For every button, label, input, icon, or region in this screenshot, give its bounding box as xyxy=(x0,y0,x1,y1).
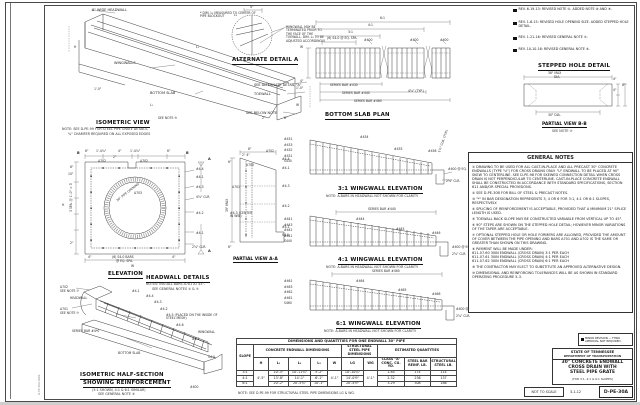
half-label-wingwall: WINGWALL xyxy=(198,331,215,334)
elev-dim-t2: 1'-4⅞" xyxy=(96,150,106,153)
half-label-see7a: SEE NOTE ⑦ xyxy=(60,290,79,293)
elev-label-a702b: A702 xyxy=(140,160,148,163)
step-dim-30: 30" DIA. xyxy=(548,114,561,117)
partial-bb-title: PARTIAL VIEW B-B xyxy=(542,122,587,128)
ww3-bar-434: #434 xyxy=(360,136,369,139)
general-note: ① DRAWING TO BE USED FOR ALL CAST-IN-PLA… xyxy=(472,165,629,189)
half-title-1: ISOMETRIC HALF-SECTION xyxy=(80,372,164,380)
cell-slope: 6:1 xyxy=(237,381,254,387)
general-note: ③ "*" IN BAR DESIGNATION REPRESENTS 3, 4… xyxy=(472,197,629,205)
cell-w: 4'-1" xyxy=(328,370,342,387)
elev-dim-l10: 10" xyxy=(68,173,73,176)
elev-marker-a2: A xyxy=(208,250,211,254)
iso-dim-l2: L₂ xyxy=(196,46,199,49)
wingwall-31-drawing xyxy=(296,132,461,188)
elev-dim-w: W xyxy=(131,265,134,268)
slab-dim-61: 6:1 xyxy=(380,17,385,20)
ww6-stack-4: #461 xyxy=(284,297,293,300)
title-block: STATE OF TENNESSEE DEPARTMENT OF TRANSPO… xyxy=(552,348,633,385)
slab-label-400c: #400 xyxy=(440,39,449,42)
quantities-table: DIMENSIONS AND QUANTITIES FOR ONE ENDWAL… xyxy=(236,338,457,387)
general-note: ⑨ THE CONTRACTOR MAY ELECT TO SUBSTITUTE… xyxy=(472,265,629,269)
general-notes-box: GENERAL NOTES ① DRAWING TO BE USED FOR A… xyxy=(468,152,633,313)
pa-label-center: #4-3 (CENTER IN WW) xyxy=(230,212,256,219)
step-dim-4a: 4" xyxy=(613,78,616,81)
slab-label-400a: #400 xyxy=(364,39,373,42)
elev-marker-a1: A xyxy=(208,158,211,162)
binding-margin-line xyxy=(10,3,11,399)
revision-item: REV. 6-19-13: REVISED NOTE ⑤. ADDED NOTE… xyxy=(513,8,633,12)
elev-label-r4: 4⅝" CLR. xyxy=(196,196,210,199)
pa-dim-24: 2" 4" xyxy=(242,154,250,157)
col-class-a: CLASS "A" CONC. CU. YD. xyxy=(378,357,405,370)
ww3-bar-435: #435 xyxy=(394,148,403,151)
elev-label-r2: #4-1 xyxy=(196,176,204,179)
col-lg: LG xyxy=(342,357,364,370)
pa-label-r2: #4-1 xyxy=(282,167,290,170)
general-note: ⑤ TOEWALL BACK SLOPE MAY BE CONSTRUCTED … xyxy=(472,217,629,221)
cell-steel: 186 xyxy=(431,381,457,387)
revision-item: REV. 10-10-16: REVISED GENERAL NOTE ⑥. xyxy=(513,48,633,52)
ww3-stack-5: S430 xyxy=(284,160,292,163)
revision-marker-icon xyxy=(513,9,517,13)
iso-dim-10: 1'-0" xyxy=(94,88,101,91)
agency-dept: DEPARTMENT OF TRANSPORTATION xyxy=(553,354,632,358)
cell-reinf: 308 xyxy=(405,381,431,387)
drawing-sheet: D-PE-30A.DGN 8" WIDE HEADWALL * DIM. L₂ … xyxy=(0,0,640,405)
half-label-b2: #4-2 xyxy=(160,308,168,311)
ww4-series: SERIES BAR #440 xyxy=(368,208,396,211)
revision-item: REV. 1-6-15: REVISED HOLE OPENING SIZE. … xyxy=(513,21,633,29)
ww3-dim-clr: 2⅝" CLR. xyxy=(446,180,460,183)
slab-dim-typ: 4⅝" (TYP.) xyxy=(408,90,424,93)
ww6-stack-2: #463 xyxy=(284,286,293,289)
pa-label-a702: A702 xyxy=(266,150,274,153)
cell-l3: 10'-1" xyxy=(311,381,328,387)
half-label-b4: #4-4 xyxy=(146,295,154,298)
elevation-drawing xyxy=(58,148,218,270)
general-note-payment: ⑧ PAYMENT WILL BE MADE UNDER: 611-07.60 … xyxy=(472,247,629,263)
elev-dim-t5: 6" xyxy=(167,150,170,153)
minor-revision-text: MINOR REVISION — FHWA APPROVAL NOT REQUI… xyxy=(585,337,631,343)
drawing-title-line3: STEEL PIPE GRATE xyxy=(553,370,632,375)
slab-dim-41: 4:1 xyxy=(368,24,373,27)
elev-label-r1: #4-4 xyxy=(196,168,204,171)
elev-label-r3: #4-3 xyxy=(196,186,204,189)
ww6-dim-clr: 2⅝" CLR. xyxy=(456,315,470,318)
ww3-note: NOTE: A-BARS IN HEADWALL NOT SHOWN FOR C… xyxy=(326,195,418,199)
ww4-dim-clr: 2⅝" CLR. xyxy=(452,253,466,256)
general-notes-title: GENERAL NOTES xyxy=(469,153,632,163)
iso-label-see-alt: SEE ALTERNATE DETAIL "A" xyxy=(254,84,301,88)
general-note: ⑦ OPTIONAL STEPPED HOLE OR HOLE FORMERS … xyxy=(472,233,629,245)
cell-h: 4'-5" xyxy=(254,370,269,387)
revision-text: REV. 1-6-15: REVISED HOLE OPENING SIZE. … xyxy=(519,21,634,29)
elev-dim-h: H xyxy=(62,204,64,207)
ww4-bar-446: #446 xyxy=(432,232,441,235)
iso-note2: ¾" CHAMFER REQUIRED ON ALL EXPOSED EDGES xyxy=(68,133,150,137)
revision-text: REV. 1-21-16: REVISED GENERAL NOTE ⑤. xyxy=(519,36,588,40)
elev-label-r5: #4-2 xyxy=(196,212,204,215)
col-l3: L₃ xyxy=(311,357,328,370)
elev-dim-lspa: 3 SPA. @ 1'-0" = 3' xyxy=(70,183,73,212)
elev-label-a703: A703 xyxy=(134,192,142,195)
slab-dim-10: 1'-0" xyxy=(296,87,303,90)
half-label-b1: #4-1 xyxy=(132,290,140,293)
general-note: ② SEE D-PE-30B FOR BILL OF STEEL & PRECA… xyxy=(472,191,629,195)
revision-marker-icon xyxy=(513,37,517,41)
half-label-bottom-slab: BOTTOM SLAB xyxy=(118,352,140,355)
ww6-title: 6:1 WINGWALL ELEVATION xyxy=(336,321,421,329)
half-label-b6: #4-6 xyxy=(176,324,184,327)
half-label-b3: #4-3 xyxy=(154,301,162,304)
cell-conc: 3.29 xyxy=(378,381,405,387)
slab-series-460: SERIES BAR #460 xyxy=(354,100,382,103)
general-notes-body: ① DRAWING TO BE USED FOR ALL CAST-IN-PLA… xyxy=(469,163,632,283)
iso-dim-h: H xyxy=(74,46,76,49)
cell-wg: 4'-1" xyxy=(364,370,378,387)
slab-dim-4: 4" xyxy=(300,80,303,83)
elev-dim-t3: 4" xyxy=(118,150,121,153)
ww6-stack-3: #462 xyxy=(284,291,293,294)
drawing-date: 3-1-12 xyxy=(570,390,581,394)
col-l1: L₁ xyxy=(269,357,289,370)
col-l2: L₂ xyxy=(289,357,311,370)
elev-dim-l8: 8" xyxy=(70,166,73,169)
iso-label-bottom-slab: BOTTOM SLAB xyxy=(150,92,175,96)
drawing-number: D-PE-30A xyxy=(599,386,633,398)
ww3-stack-2: #433 xyxy=(284,144,293,147)
elev-marker-b1: B xyxy=(77,152,80,156)
ww6-note: NOTE: A-BARS IN HEADWALL NOT SHOWN FOR C… xyxy=(324,330,416,334)
iso-label-toewall: TOEWALL xyxy=(254,93,271,97)
col-slope: SLOPE xyxy=(237,344,254,370)
elev-dim-4b: 4" xyxy=(172,256,175,259)
half-label-series: SERIES BAR #4*0 xyxy=(72,330,99,333)
ww6-bar-464: #464 xyxy=(356,280,365,283)
step-dim-8: 8" xyxy=(622,84,625,87)
half-title-2: SHOWING REINFORCEMENT xyxy=(83,380,171,388)
cell-lg: 20'-4½" xyxy=(342,381,364,387)
step-dim-4b: 4" xyxy=(613,89,616,92)
ww4-bar-444: #444 xyxy=(356,218,365,221)
drawing-subtitle: (FOR 3:1, 4:1 & 6:1 SLOPES) xyxy=(553,377,632,381)
iso-dim-l1: L₁ xyxy=(150,104,153,107)
ww6-bar-466: #466 xyxy=(432,293,441,296)
alt-dim-l3: L₃ xyxy=(234,14,237,17)
pa-dim-max: 39" MAX xyxy=(226,199,229,212)
group-concrete: CONCRETE ENDWALL DIMENSIONS xyxy=(254,344,342,357)
slab-dim-31: 3:1 xyxy=(348,31,353,34)
ww3-bar-436: #436 xyxy=(428,150,437,153)
ww3-stack-1: #431 xyxy=(284,138,293,141)
scale-box: NOT TO SCALE xyxy=(524,387,564,397)
minor-revision-box: MINOR REVISION — FHWA APPROVAL NOT REQUI… xyxy=(578,333,633,346)
iso-label-see-note5: SEE NOTE ⑤ xyxy=(158,117,177,120)
ww3-stack-3: #432 xyxy=(284,149,293,152)
ww3-stack-4: #431 xyxy=(284,155,293,158)
plot-stamp: D-PE-30A.DGN xyxy=(37,375,41,395)
iso-dim-2: 2" xyxy=(262,117,265,120)
col-structural: STRUCTURAL STEEL LB. xyxy=(431,357,457,370)
ww4-stack-4: #441 xyxy=(284,235,293,238)
half-label-see7b: SEE NOTE ⑦ xyxy=(60,312,79,315)
ww6-stack-1: #461 xyxy=(284,280,293,283)
ww4-stack-5: S440 xyxy=(284,240,292,243)
revision-marker-icon xyxy=(513,22,517,26)
half-label-b400: #400 xyxy=(190,386,199,389)
alt-detail-title: ALTERNATE DETAIL A xyxy=(232,57,298,65)
pa-dim-6: 6" xyxy=(228,161,231,164)
half-label-s40: S4-0 xyxy=(208,356,215,359)
slab-dim-w: W xyxy=(300,46,303,49)
ww4-stack-2: #443 xyxy=(284,224,293,227)
cell-l2: 20'-5¾" xyxy=(289,381,311,387)
col-w: W xyxy=(328,357,342,370)
iso-label-headwall: 8" WIDE HEADWALL xyxy=(92,9,127,13)
ww6-bar-465: #465 xyxy=(398,289,407,292)
revision-marker-icon xyxy=(513,49,517,53)
iso-dim-8: 8" xyxy=(284,117,287,120)
half-label-b5: #4-5 (PLACED ON THE INSIDE OF STEEL MESH… xyxy=(166,314,224,321)
step-dim-dia: DIA. xyxy=(554,76,560,79)
half-label-b1b: #4-1 xyxy=(192,338,200,341)
table-row: 6:1 20'-2" 20'-5¾" 10'-1" 20'-4½" 3.29 3… xyxy=(237,381,457,387)
revision-text: REV. 6-19-13: REVISED NOTE ⑤. ADDED NOTE… xyxy=(519,8,612,12)
ww6-series: SERIES BAR #460 xyxy=(372,270,400,273)
elev-dim-clr: 2⅝" CLR. xyxy=(192,246,206,249)
general-note: ⑩ DIMENSIONAL AND REINFORCING TOLERANCES… xyxy=(472,271,629,279)
elev-label-r6: #4-1 xyxy=(196,232,204,235)
half-label-headwall: HEADWALL xyxy=(70,297,87,300)
col-wg: WG xyxy=(364,357,378,370)
partial-view-aa-drawing xyxy=(224,146,292,258)
pa-label-a700: A700 xyxy=(246,164,254,167)
alt-dim-4: 4" xyxy=(250,6,253,9)
pa-label-r3: #4-3 xyxy=(282,185,290,188)
pa-dim-6b: 6" xyxy=(228,246,231,249)
cell-l1: 20'-2" xyxy=(269,381,289,387)
title-block-agency: STATE OF TENNESSEE DEPARTMENT OF TRANSPO… xyxy=(553,349,632,360)
ww4-stack-3: #442 xyxy=(284,229,293,232)
elev-dim-2: 2" xyxy=(113,156,116,159)
ww6-stack-5: S460 xyxy=(284,302,292,305)
slab-series-430: SERIES BAR #430 xyxy=(330,84,358,87)
pa-dim-8: 8" xyxy=(248,148,251,151)
elevation-title: ELEVATION xyxy=(108,271,143,279)
group-steel-pipe: STRUCTURAL STEEL PIPE DIMENSIONS xyxy=(342,344,378,357)
ww3-title: 3:1 WINGWALL ELEVATION xyxy=(338,186,423,194)
minor-revision-marker-icon xyxy=(581,338,584,341)
slab-label-spa: (6) S4-0 @ EQ. SPA. xyxy=(327,37,357,40)
revision-text: REV. 10-10-16: REVISED GENERAL NOTE ⑥. xyxy=(519,48,590,52)
group-estimated: ESTIMATED QUANTITIES xyxy=(378,344,457,357)
ww4-title: 4:1 WINGWALL ELEVATION xyxy=(338,257,423,265)
elev-dim-t4: 1'-4⅞" xyxy=(130,150,140,153)
ww4-bar-445: #445 xyxy=(396,228,405,231)
table-note: NOTE: SEE D-PE-99 FOR STRUCTURAL STEEL P… xyxy=(238,391,355,395)
general-note: ⑥ 90° STEPS ARE SHOWN ON THE STEPPED HOL… xyxy=(472,223,629,231)
col-steel-bar: STEEL BAR REINF. LB. xyxy=(405,357,431,370)
partial-bb-note: SEE NOTE ⑦ xyxy=(552,130,572,134)
elev-marker-b2: B xyxy=(186,152,189,156)
elev-label-a702a: A702 xyxy=(98,160,106,163)
partial-aa-title: PARTIAL VIEW A-A xyxy=(233,257,278,263)
elev-dim-t1: 6" xyxy=(85,150,88,153)
slab-label-400b: #400 xyxy=(410,39,419,42)
elev-dim-4a: 4" xyxy=(88,256,91,259)
col-h: H xyxy=(254,357,269,370)
elev-dim-l2: 2" xyxy=(70,242,73,245)
ww4-stack-1: #441 xyxy=(284,218,293,221)
elev-label-spa: @ EQ. SPA. xyxy=(116,260,133,263)
pa-label-r4: #4-2 xyxy=(282,205,290,208)
slab-series-440: SERIES BAR #440 xyxy=(342,92,370,95)
pa-label-a701: A701 xyxy=(232,186,240,189)
iso-label-wingwalls: WINGWALLS xyxy=(114,62,136,66)
general-note: ④ SPLICING OF REINFORCEMENT IS ACCEPTABL… xyxy=(472,207,629,215)
revision-item: REV. 1-21-16: REVISED GENERAL NOTE ⑤. xyxy=(513,36,633,40)
half-sub-2: SEE GENERAL NOTE ③ xyxy=(98,393,135,397)
slab-title: BOTTOM SLAB PLAN xyxy=(325,112,390,120)
